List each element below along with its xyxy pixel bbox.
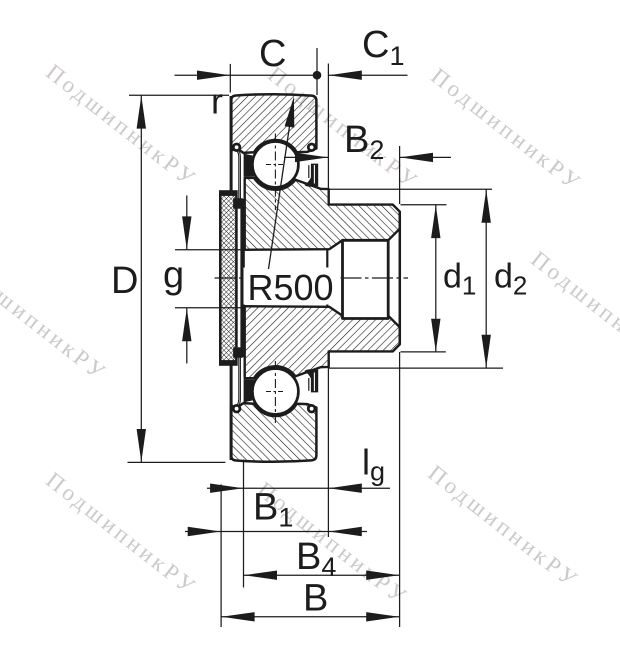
- svg-text:B: B: [303, 578, 328, 620]
- svg-text:R500: R500: [248, 267, 334, 308]
- svg-text:g: g: [163, 255, 184, 297]
- svg-text:r: r: [211, 81, 223, 122]
- svg-text:D: D: [111, 260, 138, 302]
- svg-text:C: C: [259, 33, 286, 75]
